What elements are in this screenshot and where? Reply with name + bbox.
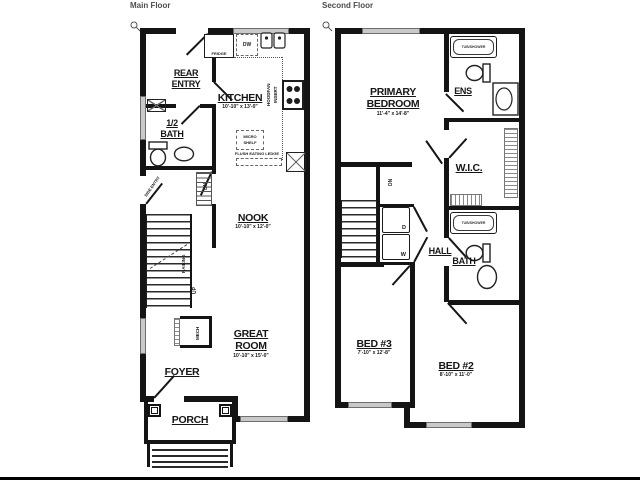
porch-step (152, 461, 228, 463)
washer: W (382, 234, 410, 260)
window (140, 318, 146, 354)
dryer: D (382, 207, 410, 233)
wall (444, 34, 449, 92)
window (140, 96, 146, 140)
window (362, 28, 420, 34)
eating-ledge (236, 158, 282, 166)
wall (519, 28, 525, 428)
counter-edge (234, 57, 282, 58)
door-leaf (448, 138, 467, 158)
floorplan-canvas: Main Floor MECH RAILING UP DN SIDE ENTRY… (0, 0, 640, 480)
toilet-icon (148, 141, 168, 172)
step-rail (147, 444, 150, 467)
window (240, 416, 288, 422)
wall (444, 266, 449, 302)
room-label-primary-bedroom: PRIMARY BEDROOM 11'-4" x 14'-8" (347, 86, 439, 118)
second-floor-title: Second Floor (322, 1, 373, 10)
door-leaf (447, 302, 467, 324)
wall (209, 316, 212, 348)
room-label-porch: PORCH (158, 414, 222, 426)
tub-shower: TUB/SHOWER (450, 212, 497, 234)
door-leaf (425, 140, 442, 164)
main-floor-title: Main Floor (130, 1, 170, 10)
door-leaf (153, 375, 174, 398)
wall (448, 300, 525, 305)
room-label-wic: W.I.C. (446, 162, 492, 174)
room-label-rear-entry: REAR ENTRY (158, 68, 214, 89)
hoodfan-label: INSERT (273, 77, 278, 113)
mech-label: MECH (195, 319, 200, 347)
room-label-kitchen: KITCHEN 10'-10" x 13'-0" (207, 92, 273, 111)
vanity-sink-icon (492, 82, 519, 121)
porch-step (152, 455, 228, 457)
wall (410, 262, 415, 408)
tub-shower: TUB/SHOWER (450, 36, 497, 58)
dn-label: DN (203, 176, 209, 196)
porch-step (152, 466, 228, 468)
room-label-bed3: BED #3 7'-10" x 12'-8" (338, 338, 410, 357)
closet-shelf (450, 194, 482, 206)
bifold-door-leaf (413, 206, 428, 231)
room-label-great-room: GREAT ROOM 10'-10" x 15'-0" (214, 328, 288, 360)
room-label-half-bath: 1/2 BATH (150, 118, 194, 139)
room-label-nook: NOOK 10'-10" x 12'-0" (218, 212, 288, 231)
step-rail (230, 444, 233, 467)
dn-label: DN (388, 172, 394, 192)
post (286, 152, 306, 172)
wall (184, 396, 238, 402)
door-leaf (392, 265, 411, 285)
louvered-door (174, 318, 180, 346)
wall (444, 206, 525, 210)
wall (212, 104, 216, 168)
wall (444, 118, 449, 130)
porch-wall (144, 440, 236, 444)
sink-icon (476, 264, 498, 295)
room-label-foyer: FOYER (152, 366, 212, 378)
kitchen-sink-icon (260, 31, 286, 56)
micro-shelf: MICRO SHELF (236, 130, 264, 150)
sink-icon (173, 146, 195, 167)
up-label: UP (192, 282, 198, 300)
wall (335, 262, 384, 267)
wall (304, 28, 310, 422)
flush-eating-ledge-label: FLUSH EATING LEDGE (230, 151, 284, 156)
fridge: FRIDGE (204, 34, 234, 58)
room-label-ensuite: ENS (448, 86, 478, 97)
north-arrow-icon (322, 19, 333, 37)
room-label-bed2: BED #2 8'-10" x 11'-0" (420, 360, 492, 379)
toilet-icon (465, 63, 491, 83)
railing-label: RAILING (181, 238, 186, 290)
window (348, 402, 392, 408)
closet-shelf (504, 128, 518, 198)
stairs-down (341, 200, 377, 258)
dishwasher: DW (236, 34, 258, 56)
window (426, 422, 472, 428)
wall (212, 168, 216, 174)
wall (212, 204, 216, 248)
room-label-bath: BATH (444, 256, 484, 267)
porch-step (152, 449, 228, 451)
shelf-niche (147, 99, 166, 112)
stove-icon (282, 80, 304, 115)
